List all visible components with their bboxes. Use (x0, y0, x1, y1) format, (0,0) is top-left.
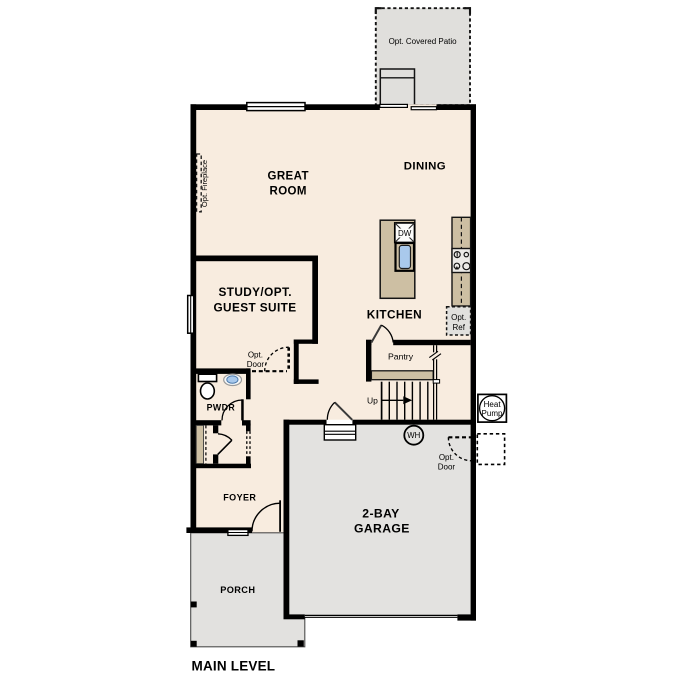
svg-text:PORCH: PORCH (220, 585, 255, 595)
svg-text:GREAT: GREAT (267, 170, 308, 182)
svg-text:Heat: Heat (484, 400, 502, 409)
svg-text:Opt. Fireplace: Opt. Fireplace (200, 160, 209, 207)
svg-text:Opt.: Opt. (439, 453, 454, 462)
svg-text:MAIN LEVEL: MAIN LEVEL (192, 658, 276, 673)
svg-text:DW: DW (398, 229, 412, 238)
svg-text:Pump: Pump (482, 409, 503, 418)
svg-text:GARAGE: GARAGE (354, 521, 410, 535)
svg-text:Up: Up (367, 395, 378, 405)
svg-text:Door: Door (247, 360, 265, 369)
svg-text:KITCHEN: KITCHEN (367, 308, 422, 322)
svg-text:GUEST SUITE: GUEST SUITE (213, 300, 296, 314)
svg-text:Door: Door (438, 462, 456, 471)
svg-text:Opt.: Opt. (451, 313, 466, 322)
svg-text:PWDR: PWDR (207, 403, 236, 413)
svg-text:ROOM: ROOM (270, 186, 307, 198)
svg-text:STUDY/OPT.: STUDY/OPT. (218, 285, 291, 299)
svg-text:FOYER: FOYER (223, 492, 256, 502)
svg-text:2-BAY: 2-BAY (362, 506, 399, 520)
svg-text:Ref: Ref (452, 323, 465, 332)
svg-text:Pantry: Pantry (388, 351, 414, 361)
svg-text:DINING: DINING (404, 160, 446, 172)
svg-text:WH: WH (407, 431, 420, 440)
svg-text:Opt. Covered Patio: Opt. Covered Patio (389, 37, 458, 46)
svg-text:Opt.: Opt. (248, 351, 263, 360)
